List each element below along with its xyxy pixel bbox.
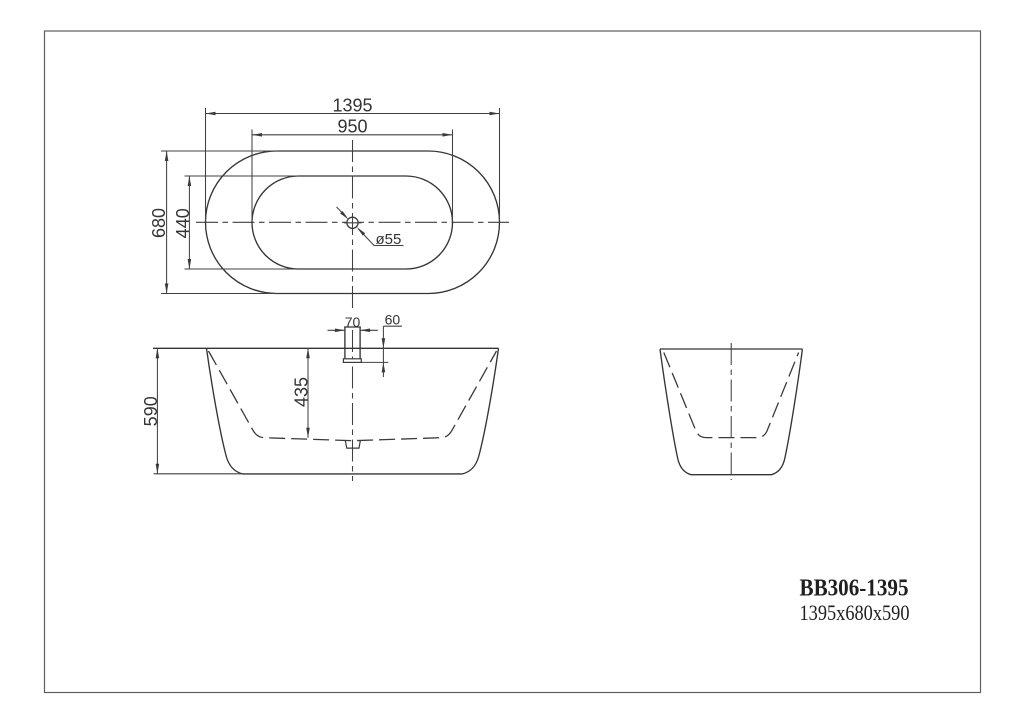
svg-text:950: 950 bbox=[337, 117, 367, 137]
svg-text:BB306-1395: BB306-1395 bbox=[800, 576, 909, 602]
svg-text:1395x680x590: 1395x680x590 bbox=[800, 600, 910, 625]
svg-text:60: 60 bbox=[385, 312, 401, 328]
svg-text:680: 680 bbox=[149, 208, 169, 238]
svg-text:440: 440 bbox=[173, 208, 193, 238]
svg-text:590: 590 bbox=[141, 396, 161, 426]
svg-text:70: 70 bbox=[345, 314, 361, 330]
svg-text:1395: 1395 bbox=[332, 95, 372, 115]
svg-text:ø55: ø55 bbox=[376, 231, 402, 248]
svg-text:435: 435 bbox=[291, 377, 311, 407]
